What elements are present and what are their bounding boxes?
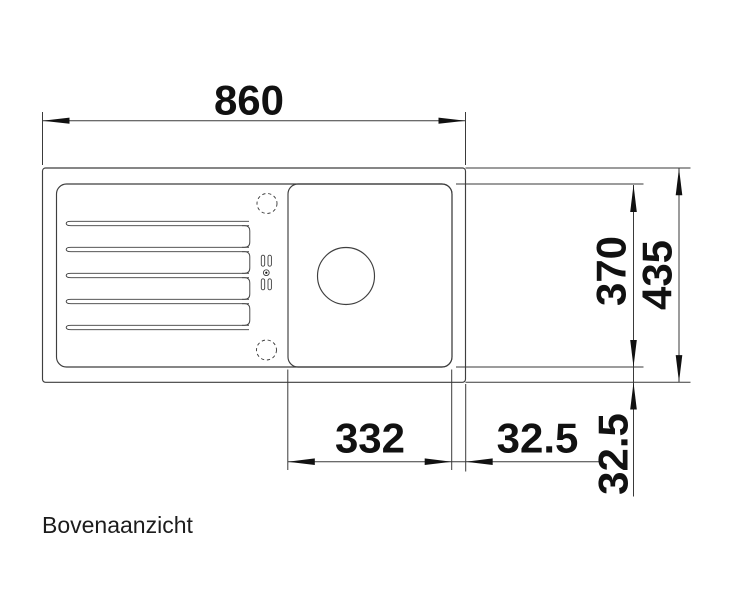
drainboard-grooves — [66, 221, 250, 329]
overflow-bar — [268, 255, 271, 266]
drainboard-groove-end — [242, 278, 250, 300]
dim-label-width-total: 860 — [214, 77, 284, 124]
overflow-mark — [261, 255, 271, 290]
sink-top-view-drawing: 860 370 435 332 32.5 32.5 Bovenaanzicht — [0, 0, 751, 599]
dim-label-depth-total: 435 — [634, 240, 681, 310]
dim-label-bowl-offset-right: 32.5 — [497, 415, 579, 462]
basin-outline — [288, 184, 452, 367]
drainboard-groove — [66, 325, 249, 329]
sink-rim-inner-edge — [57, 184, 453, 367]
technical-drawing-page: 860 370 435 332 32.5 32.5 Bovenaanzicht — [0, 0, 751, 599]
overflow-bar — [261, 279, 264, 290]
arrowhead-right — [439, 118, 466, 124]
drainboard-groove — [66, 273, 249, 277]
drainboard-groove — [66, 221, 249, 225]
arrowhead-right — [425, 458, 452, 465]
drain-hole — [318, 248, 375, 305]
arrowhead-up — [676, 168, 683, 195]
arrowhead-down — [676, 355, 683, 382]
drainboard-groove — [66, 247, 249, 251]
overflow-bar — [268, 279, 271, 290]
arrowhead-down — [630, 340, 637, 367]
tap-hole-bottom — [257, 340, 277, 360]
view-caption: Bovenaanzicht — [42, 512, 193, 538]
drainboard-groove-end — [242, 252, 250, 274]
tap-hole-top — [257, 194, 277, 214]
sink-outline-group — [43, 168, 466, 382]
arrowhead-left — [43, 118, 70, 124]
arrowhead-left — [288, 458, 315, 465]
drainboard-groove-end — [242, 226, 250, 248]
drainboard-groove-end — [242, 304, 250, 326]
drainboard-groove — [66, 299, 249, 303]
dim-label-depth-inner: 370 — [588, 236, 635, 306]
arrowheads — [43, 118, 683, 465]
sink-outer-edge — [43, 168, 466, 382]
arrowhead-left — [466, 458, 493, 465]
overflow-bar — [261, 255, 264, 266]
dim-label-bowl-width: 332 — [335, 415, 405, 462]
arrowhead-up — [630, 185, 637, 212]
arrowhead-up — [630, 383, 637, 410]
overflow-dot — [265, 272, 267, 274]
dim-label-depth-offset-bottom: 32.5 — [590, 413, 637, 495]
